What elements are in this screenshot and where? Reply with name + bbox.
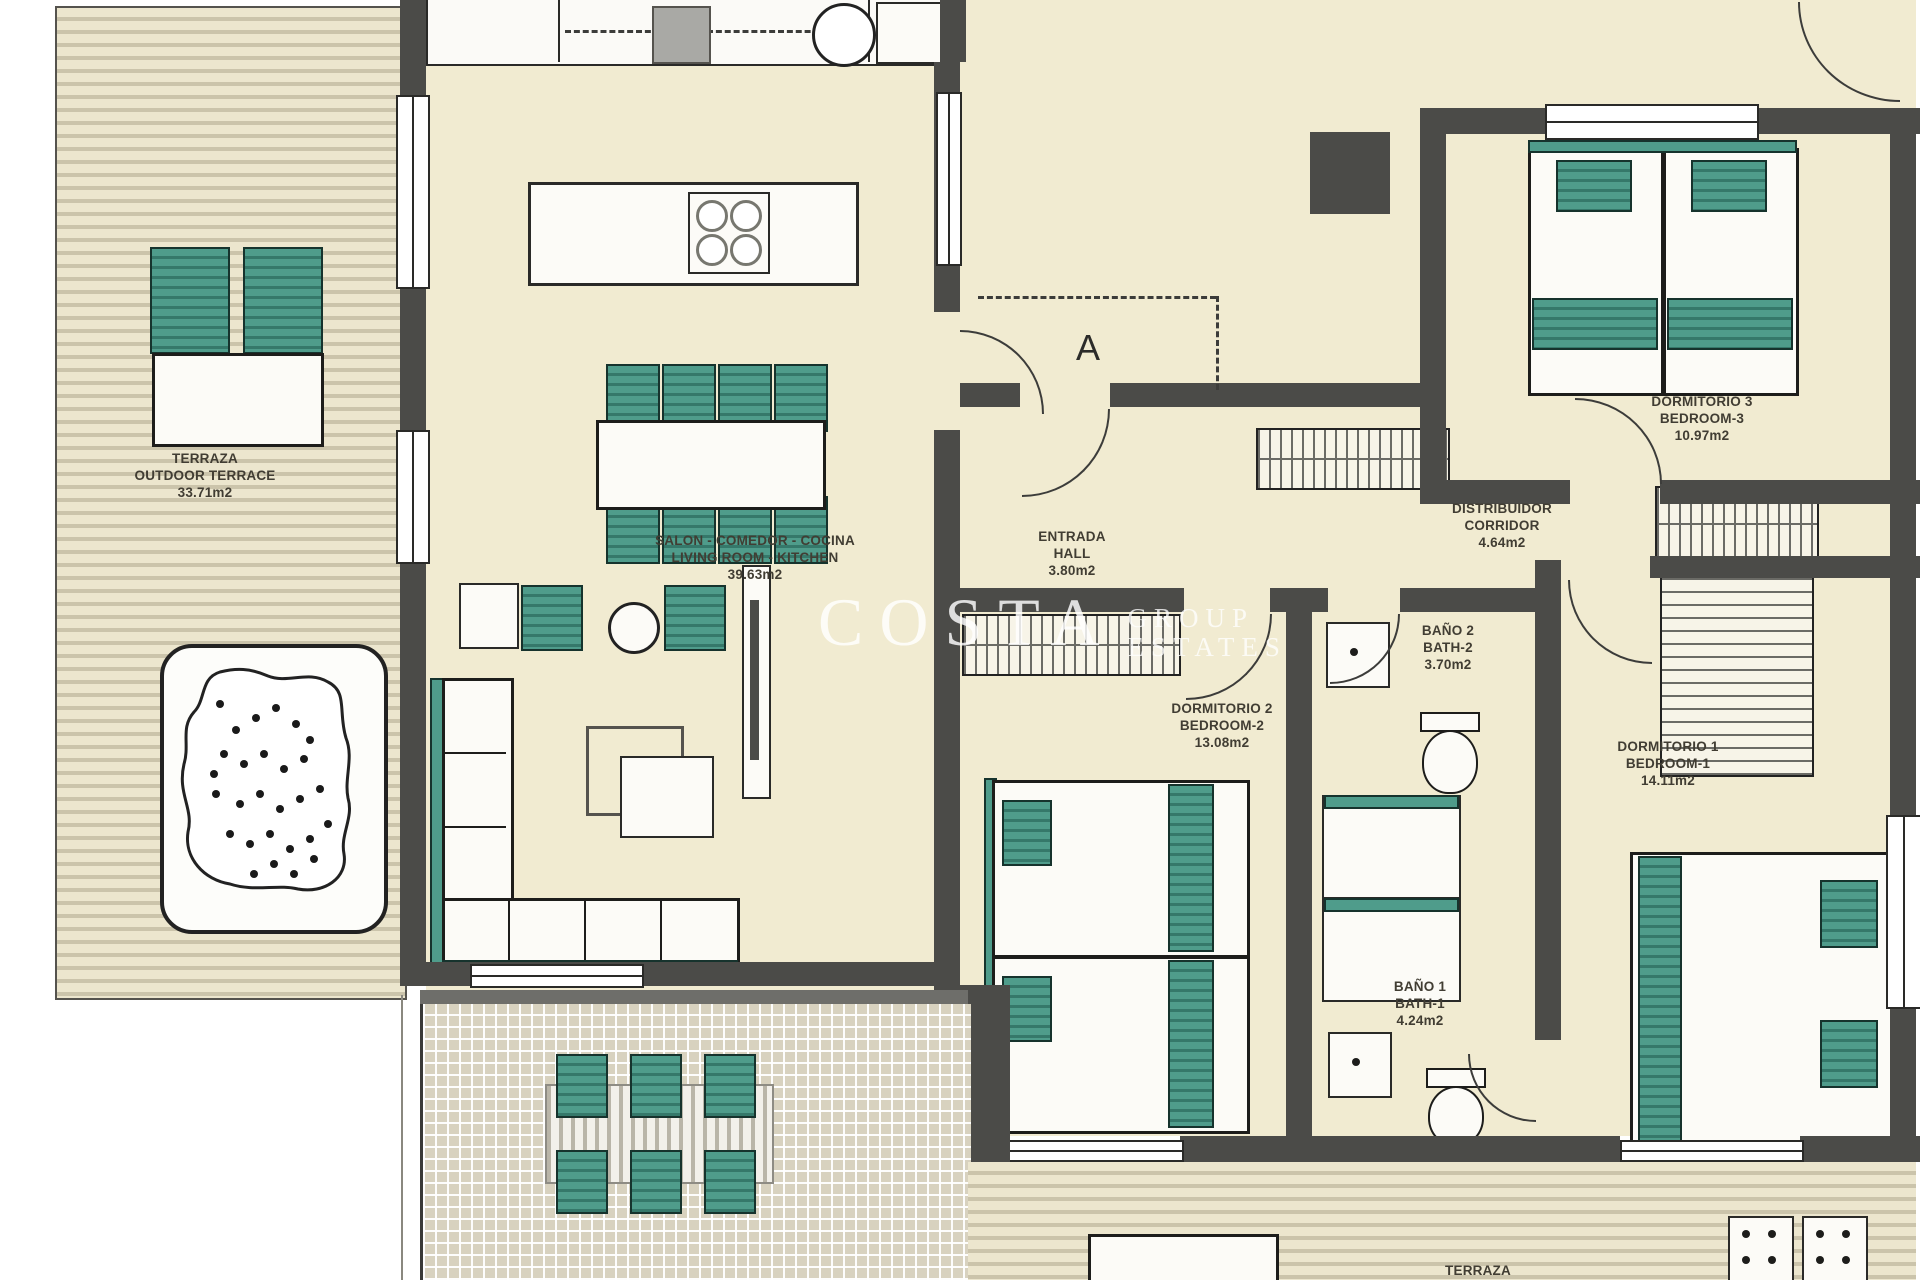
room-area: 14.11m2	[1617, 772, 1718, 789]
room-label-terrace-bottom: TERRAZA	[1445, 1262, 1511, 1279]
wall	[1535, 560, 1561, 1040]
round-sink	[812, 3, 876, 67]
pergola-beam	[420, 990, 968, 1004]
hot-tub	[158, 642, 390, 936]
room-name-es: DORMITORIO 1	[1617, 738, 1718, 755]
window	[396, 430, 430, 564]
room-name-en: BEDROOM-1	[1617, 755, 1718, 772]
bed-runner	[1168, 960, 1214, 1128]
counter-end-cabinet	[876, 2, 942, 64]
headboard	[1528, 140, 1797, 153]
wall	[1660, 480, 1920, 504]
wardrobe-bedroom2	[962, 614, 1181, 676]
pillar	[1310, 132, 1390, 214]
wall	[1270, 588, 1312, 612]
room-label-bath2: BAÑO 2 BATH-2 3.70m2	[1422, 622, 1474, 673]
room-label-bedroom2: DORMITORIO 2 BEDROOM-2 13.08m2	[1171, 700, 1272, 751]
terrace-bottom-table	[1088, 1234, 1279, 1280]
dining-table	[596, 420, 826, 510]
section-label: A	[1076, 330, 1100, 366]
wall	[1180, 1136, 1620, 1162]
terrace-chair	[243, 247, 323, 354]
bed-runner	[1168, 784, 1214, 952]
wall	[1400, 588, 1535, 612]
room-area: 10.97m2	[1651, 427, 1752, 444]
pillow	[1820, 880, 1878, 948]
room-area: 39.63m2	[655, 566, 855, 583]
pergola-chair	[630, 1054, 682, 1118]
pergola-chair	[556, 1054, 608, 1118]
room-name-es: TERRAZA	[135, 450, 276, 467]
sofa-vertical	[442, 678, 514, 908]
room-label-bedroom3: DORMITORIO 3 BEDROOM-3 10.97m2	[1651, 393, 1752, 444]
room-label-hall: ENTRADA HALL 3.80m2	[1038, 528, 1105, 579]
pillow	[1556, 160, 1632, 212]
room-area: 33.71m2	[135, 484, 276, 501]
room-label-living: SALON - COMEDOR - COCINA LIVING ROOM - K…	[655, 532, 855, 583]
shower-tray	[1322, 795, 1461, 899]
sofa-horizontal	[442, 898, 740, 968]
bed-runner	[1667, 298, 1793, 350]
room-name-en: BEDROOM-2	[1171, 717, 1272, 734]
room-name-en: BATH-2	[1422, 639, 1474, 656]
sliding-door	[1000, 1140, 1184, 1162]
pergola-chair	[556, 1150, 608, 1214]
room-label-terrace-left: TERRAZA OUTDOOR TERRACE 33.71m2	[135, 450, 276, 501]
tv-screen	[750, 600, 759, 760]
window	[1545, 104, 1759, 140]
bed-runner	[1532, 298, 1658, 350]
wall	[1312, 588, 1328, 612]
terrace-bottom-chair	[1728, 1216, 1794, 1280]
room-area: 4.64m2	[1452, 534, 1552, 551]
room-name-en: HALL	[1038, 545, 1105, 562]
terrace-edge-line	[401, 995, 403, 1280]
room-area: 13.08m2	[1171, 734, 1272, 751]
wall	[1110, 383, 1420, 407]
dashed-boundary	[978, 296, 1216, 299]
armchair	[664, 585, 726, 651]
room-name-en: BATH-1	[1394, 995, 1446, 1012]
room-name-es: DISTRIBUIDOR	[1452, 500, 1552, 517]
room-area: 4.24m2	[1394, 1012, 1446, 1029]
room-name-es: SALON - COMEDOR - COCINA	[655, 532, 855, 549]
side-table	[459, 583, 519, 649]
armchair	[521, 585, 583, 651]
wall	[934, 588, 1184, 612]
room-name-en: LIVING ROOM - KITCHEN	[655, 549, 855, 566]
pillow	[1691, 160, 1767, 212]
room-name-es: ENTRADA	[1038, 528, 1105, 545]
wall	[1286, 612, 1312, 1160]
room-label-bath1: BAÑO 1 BATH-1 4.24m2	[1394, 978, 1446, 1029]
pergola-chair	[704, 1150, 756, 1214]
toilet-tank	[1420, 712, 1480, 732]
room-name-es: DORMITORIO 3	[1651, 393, 1752, 410]
room-name-es: BAÑO 1	[1394, 978, 1446, 995]
wall	[1420, 108, 1446, 480]
dashed-boundary	[1216, 296, 1219, 390]
room-label-corridor: DISTRIBUIDOR CORRIDOR 4.64m2	[1452, 500, 1552, 551]
wall	[934, 430, 960, 985]
toilet	[1422, 730, 1478, 794]
room-area: 3.70m2	[1422, 656, 1474, 673]
bed-runner	[1638, 856, 1682, 1154]
window	[936, 92, 962, 266]
sliding-door	[1620, 1140, 1804, 1162]
window	[1886, 815, 1920, 1009]
floor-plan: TERRAZA OUTDOOR TERRACE 33.71m2 SALON - …	[0, 0, 1920, 1280]
kitchen-sink-unit	[652, 6, 711, 64]
bath1-sink	[1328, 1032, 1392, 1098]
wall	[1650, 556, 1920, 578]
window	[396, 95, 430, 289]
pillow	[1820, 1020, 1878, 1088]
terrace-bottom-chair	[1802, 1216, 1868, 1280]
right-margin	[1916, 0, 1920, 1280]
room-name-en: CORRIDOR	[1452, 517, 1552, 534]
pergola-chair	[704, 1054, 756, 1118]
pergola-chair	[630, 1150, 682, 1214]
pillow	[1002, 800, 1052, 866]
room-area: 3.80m2	[1038, 562, 1105, 579]
counter-divider	[558, 0, 560, 62]
wall	[940, 0, 966, 62]
room-name-es: DORMITORIO 2	[1171, 700, 1272, 717]
room-name-en: BEDROOM-3	[1651, 410, 1752, 427]
room-name-es: BAÑO 2	[1422, 622, 1474, 639]
wall	[1800, 1136, 1920, 1162]
room-name-en: OUTDOOR TERRACE	[135, 467, 276, 484]
stove	[688, 192, 770, 274]
room-label-bedroom1: DORMITORIO 1 BEDROOM-1 14.11m2	[1617, 738, 1718, 789]
room-name-es: TERRAZA	[1445, 1262, 1511, 1279]
window	[470, 964, 644, 988]
coffee-table	[620, 756, 714, 838]
terrace-table	[152, 353, 324, 447]
terrace-chair	[150, 247, 230, 354]
round-side-table	[608, 602, 660, 654]
